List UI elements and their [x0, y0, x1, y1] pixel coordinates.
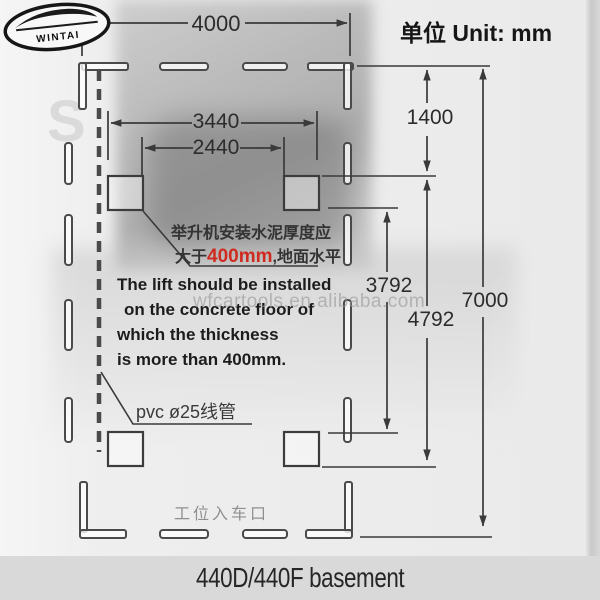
corner-bracket: [80, 482, 87, 532]
corner-bracket: [80, 530, 126, 538]
dim-label-4000: 4000: [186, 11, 246, 37]
anchor-slot: [344, 398, 351, 442]
concrete-note-en: The lift should be installed on the conc…: [117, 272, 331, 372]
unit-label: 单位 Unit: mm: [400, 14, 552, 48]
concrete-note-cn-line2: 大于400mm,地面水平: [175, 243, 341, 268]
installation-diagram: S S: [0, 0, 600, 600]
anchor-slot: [243, 530, 287, 538]
model-caption: 440D/440F basement: [196, 562, 404, 594]
anchor-slot: [243, 63, 287, 70]
corner-bracket: [79, 63, 86, 109]
anchor-slot: [344, 143, 351, 184]
entrance-label: 工位入车口: [174, 500, 269, 524]
corner-bracket: [306, 530, 352, 538]
anchor-slot: [65, 143, 72, 184]
corner-bracket: [344, 63, 351, 109]
concrete-thickness-value: 400mm: [207, 246, 273, 267]
anchor-slot: [344, 215, 351, 265]
dim-label-2440: 2440: [186, 136, 246, 160]
anchor-slot: [65, 215, 72, 265]
lift-post: [284, 432, 319, 466]
anchor-slot: [65, 398, 72, 442]
concrete-note-cn-line1: 举升机安装水泥厚度应: [171, 219, 331, 243]
footer-band: 440D/440F basement: [0, 556, 600, 600]
concrete-note-cn-prefix: 大于: [175, 249, 207, 266]
anchor-slot: [160, 63, 208, 70]
anchor-slot: [65, 300, 72, 350]
site-watermark: wfcartools.en.alibaba.com: [193, 291, 425, 313]
lift-post: [108, 432, 143, 466]
concrete-note-cn-suffix: ,地面水平: [273, 249, 341, 266]
dim-label-7000: 7000: [455, 289, 515, 313]
corner-bracket: [82, 63, 128, 70]
concrete-note-en-line3: which the thickness: [117, 322, 331, 347]
lift-post: [284, 176, 319, 210]
dim-label-1400: 1400: [400, 106, 460, 130]
lift-post: [108, 176, 143, 210]
dim-label-3440: 3440: [186, 110, 246, 134]
pvc-conduit-label: pvc ø25线管: [136, 398, 236, 424]
concrete-note-en-line4: is more than 400mm.: [117, 347, 331, 372]
anchor-slot: [160, 530, 208, 538]
corner-bracket: [345, 482, 352, 532]
